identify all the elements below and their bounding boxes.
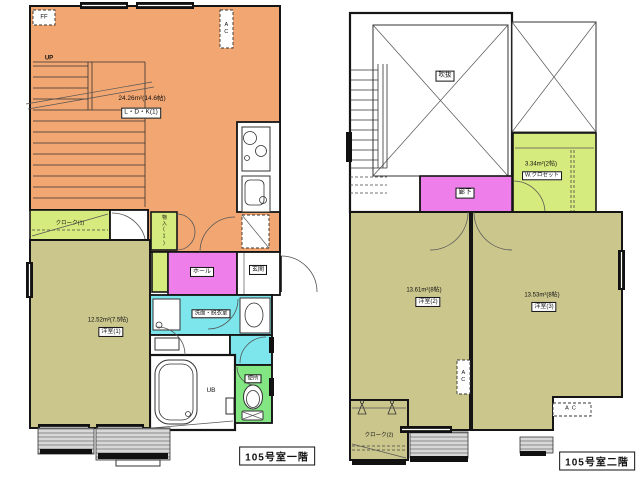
ldk-area-label: 24.26m²(14.6帖) [118,95,165,103]
corridor-tag: 廊下 [456,188,475,199]
eaves-hatch-2f [520,437,553,456]
hall-tag: ホール [190,267,214,277]
balcony-2f [410,432,468,462]
bedroom2-name-tag: 洋室(2) [415,297,440,307]
washing-machine-pan-icon [153,299,180,330]
shoe-closet [152,252,168,292]
cloak2-label: クローク(2) [365,433,394,440]
wcloset-area-label: 3.34m²(2帖) [525,161,557,168]
bedroom3-area-label: 13.53m²(8帖) [524,292,559,299]
washroom-corridor [230,335,272,365]
refrigerator-space [242,215,269,248]
floor1-title: 105号室一階 [239,447,315,466]
floor2-title: 105号室二階 [559,452,635,471]
ff-heater-label: FF [40,14,47,21]
bedroom1 [30,240,150,428]
floorplan-drawing [0,0,640,485]
bath-ub-label: UB [206,387,215,395]
wcloset-name-tag: W.クロゼット [522,171,562,180]
cloak1-label: クローク(1) [56,221,85,228]
bedroom1-name-tag: 洋室(1) [98,327,123,337]
ac-label-2f-wall: AC [460,370,467,384]
terrace-steps-1f [38,428,170,466]
bedroom3 [472,212,622,430]
stove-icon [242,127,270,171]
bedroom1-area-label: 12.52m²(7.5帖) [88,317,128,324]
bedroom2 [350,212,470,430]
bedroom2-area-label: 13.61m²(8帖) [406,287,441,294]
ac-label-2f: AC [565,406,579,413]
void-area [373,25,508,176]
floor2-plan [346,13,625,465]
genkan-tag: 玄関 [249,265,267,275]
window-washroom-right [269,337,274,353]
washer-box [155,338,179,350]
bathtub-icon [155,360,197,424]
bedroom3-name-tag: 洋室(3) [531,302,556,312]
toilet-tag: 便所 [244,374,261,383]
floor1-plan [26,2,317,466]
ac-label-1f: AC [223,22,230,36]
roof-annex [512,22,596,132]
washroom-tag: 洗面・脱衣室 [191,309,230,318]
toilet-icon [242,385,263,420]
void-tag: 吹抜 [436,71,455,82]
ldk-name-tag: L・D・K(1) [121,108,161,119]
vanity-sink-icon [240,298,270,333]
storage1-label: 物入(1) [161,215,167,248]
floorplan-canvas: FF AC UP 24.26m²(14.6帖) L・D・K(1) クローク(1)… [0,0,640,485]
stairs-up-label: UP [45,55,53,62]
kitchen-sink-icon [242,176,270,212]
entrance-door [281,256,317,292]
